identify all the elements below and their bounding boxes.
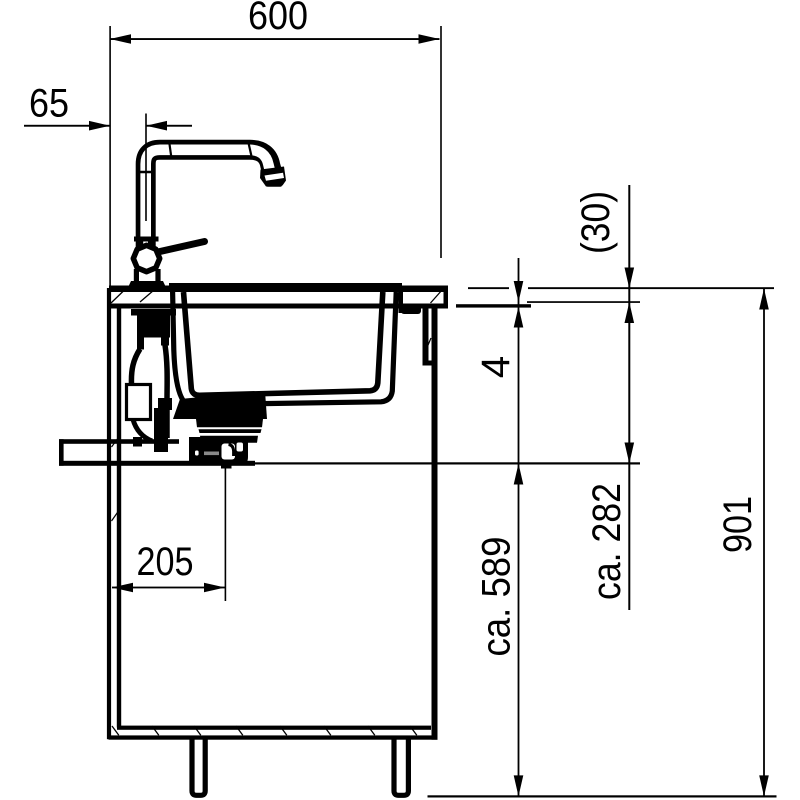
svg-text:(30): (30): [574, 191, 618, 254]
svg-text:205: 205: [137, 540, 194, 584]
svg-text:901: 901: [716, 496, 760, 553]
svg-text:ca. 282: ca. 282: [585, 483, 629, 600]
svg-text:65: 65: [29, 82, 69, 126]
svg-text:ca. 589: ca. 589: [475, 537, 519, 657]
svg-text:600: 600: [248, 0, 308, 38]
svg-text:4: 4: [474, 356, 518, 378]
